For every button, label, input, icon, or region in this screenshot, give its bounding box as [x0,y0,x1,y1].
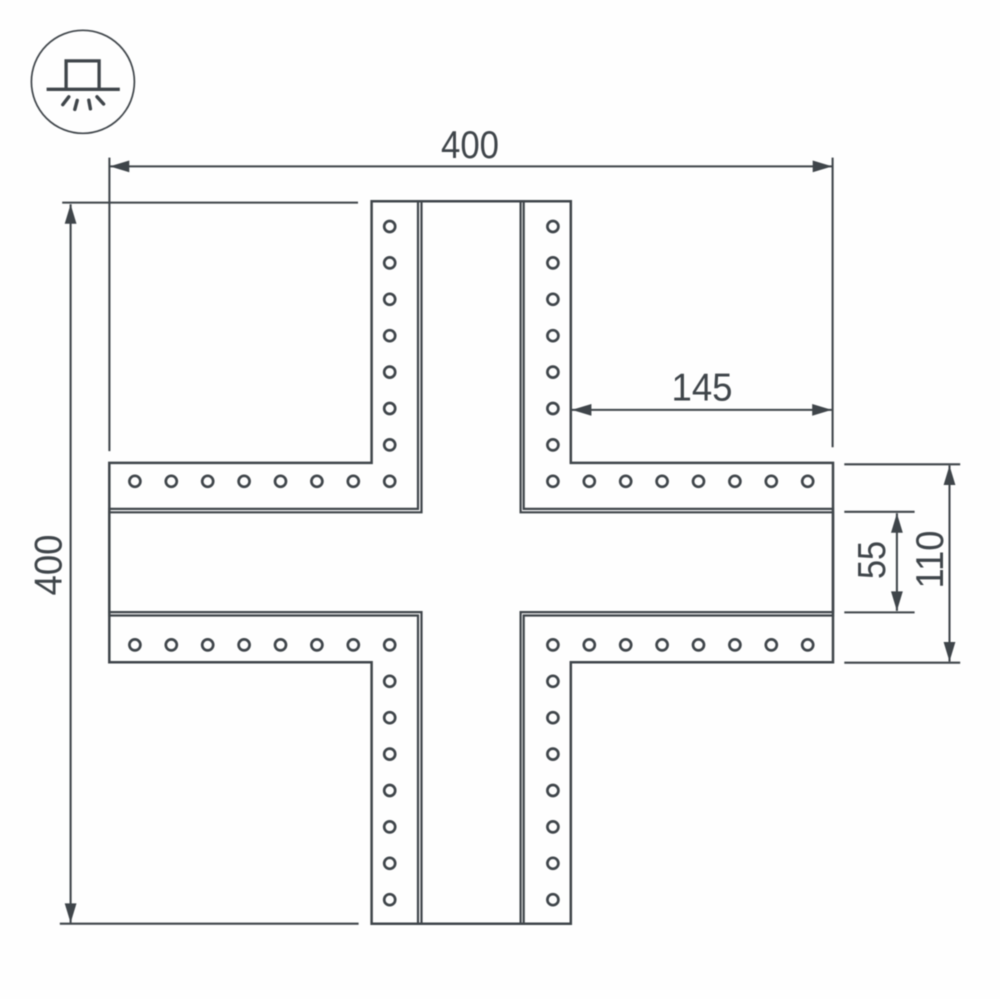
svg-text:145: 145 [672,367,733,410]
svg-text:55: 55 [851,541,894,579]
svg-text:110: 110 [909,531,952,589]
svg-text:400: 400 [28,535,71,596]
svg-text:400: 400 [441,124,499,167]
